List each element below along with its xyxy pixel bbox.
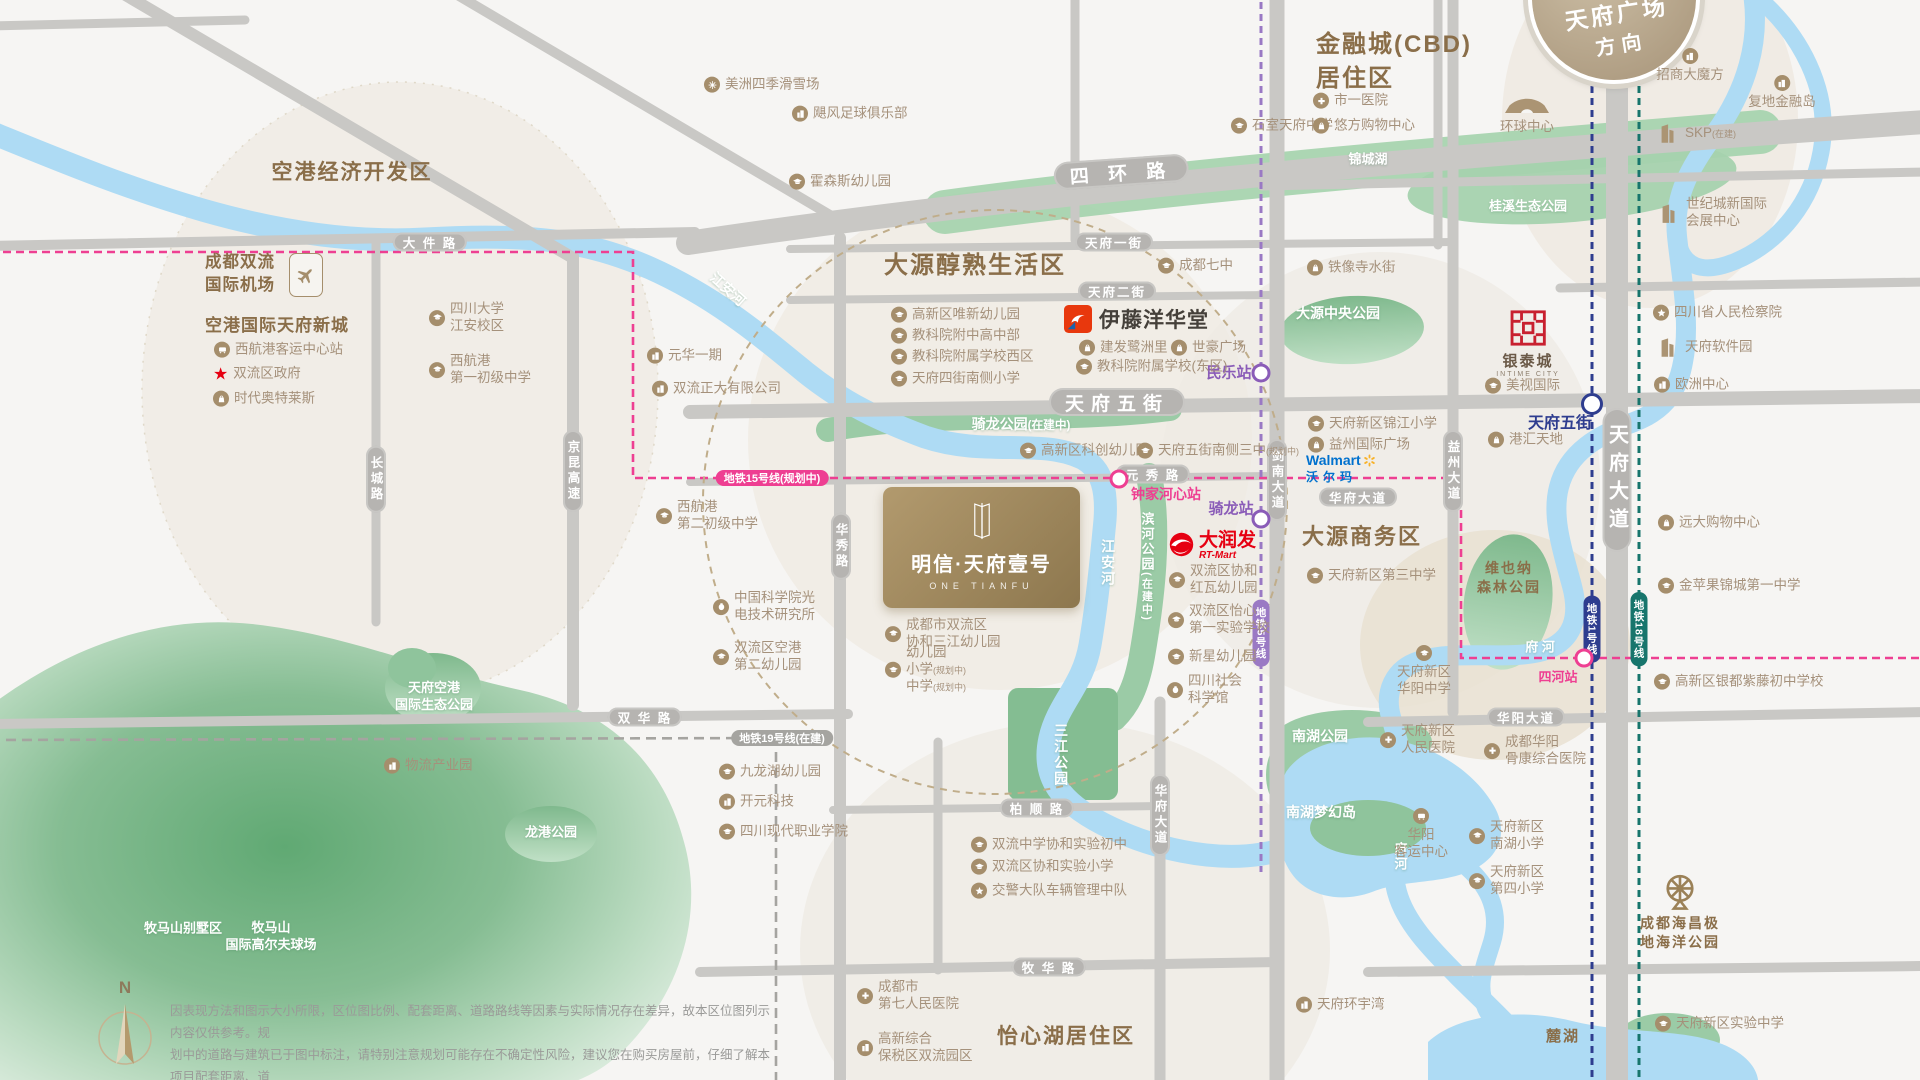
poi-label: 天府新区第四小学 [1490,864,1544,898]
poi-label: 霍森斯幼儿园 [810,174,891,191]
poi: 双流中学协和实验初中 [971,837,1127,854]
cap-icon [971,837,987,853]
poi-label: 四川社会科学馆 [1188,673,1242,707]
metro-line-badge: 地铁15号线(规划中) [716,470,829,486]
build-icon [652,381,668,397]
poi-label: 双流区政府 [233,366,301,383]
poi-label: 教科院附属学校西区 [912,349,1034,366]
poi: 天府新区第三中学 [1307,568,1436,585]
poi: 天府软件园 [1654,334,1753,360]
cross-icon [1313,93,1329,109]
cap-icon [1168,612,1184,628]
poi-label: 建发鹭洲里 [1100,340,1168,357]
cross-icon [1380,732,1396,748]
airplane-icon [289,253,323,297]
poi: 天府新区人民医院 [1380,723,1455,757]
ito-yokado-logo: 伊藤洋华堂 [1064,304,1209,334]
build-icon [384,758,400,774]
bus-icon [214,342,230,358]
intime-city-logo: 银泰城 INTIME CITY [1496,309,1560,378]
road-label: 华府大道 [1150,774,1170,856]
metro-line-badge: 地铁18号线 [1631,592,1648,666]
bag-icon [1658,515,1674,531]
road-label: 天府二街 [1078,282,1156,301]
poi-label: 西航港第二初级中学 [677,499,758,533]
poi-label: 世豪广场 [1192,340,1246,357]
poi-label: 美视国际 [1506,378,1560,395]
region-title: 大源醇熟生活区 [884,250,1066,282]
poi-label: 新星幼儿园 [1189,649,1257,666]
poi: 西航港第二初级中学 [656,499,758,533]
poi-label: 天府五街南侧三中(规划中) [1158,443,1299,460]
cap-icon [1168,649,1184,665]
poi-label: 高新区唯新幼儿园 [912,307,1020,324]
disclaimer: 因表现方法和图示大小所限，区位图比例、配套距离、道路路线等因素与实际情况存在差异… [170,1000,770,1080]
poi: 飓风足球俱乐部 [792,106,908,123]
park-label: 南湖公园 [1292,727,1348,745]
road-label: 牧 华 路 [1012,958,1086,977]
poi-label: 市一医院 [1334,93,1388,110]
poi-label: 高新区科创幼儿园 [1041,443,1149,460]
bus-icon [1413,808,1429,824]
poi-label: 物流产业园 [405,758,473,775]
poi-label: 高新区银都紫藤初中学校 [1675,674,1824,691]
poi: 华阳客运中心 [1394,808,1448,861]
poi-label: 华阳客运中心 [1394,827,1448,861]
poi: 港汇天地 [1488,432,1563,449]
poi: 天府四街南侧小学 [891,371,1020,388]
poi-label: 天府新区第三中学 [1328,568,1436,585]
poi-label: 天府四街南侧小学 [912,371,1020,388]
poi: 市一医院 [1313,93,1388,110]
poi-label: 双流正大有限公司 [673,381,781,398]
metro-station [1575,649,1594,668]
cap-icon [891,328,907,344]
poi-label: 招商大魔方 [1656,67,1724,84]
cross-icon [1484,743,1500,759]
poi: 天府新区华阳中学 [1397,645,1451,698]
cap-icon [885,662,901,678]
bag-icon [1488,432,1504,448]
airport-line1: 成都双流 [205,251,275,274]
poi: 环球中心 [1500,94,1554,136]
disclaimer-line2: 划中的道路与建筑已于图中标注，请特别注意规划可能存在不确定性风险，建议您在购买房… [170,1044,770,1080]
region-title: 麓湖 [1546,1027,1580,1047]
poi: 世豪广场 [1171,340,1246,357]
cap-icon [713,649,729,665]
poi-label: 四川省人民检察院 [1674,305,1782,322]
park-label: 南湖梦幻岛 [1286,803,1356,821]
poi: 双流区协和实验小学 [971,859,1114,876]
poi-label: 时代奥特莱斯 [234,391,315,408]
metro-station [1252,510,1271,529]
poi-label: 双流区怡心第一实验学校 [1189,603,1270,637]
wheel-icon [1659,870,1701,912]
poi: 欧洲中心 [1654,377,1729,394]
road-label: 华秀路 [831,513,851,580]
arc-icon [1502,94,1552,116]
poi-label: 飓风足球俱乐部 [813,106,908,123]
road-label: 益州大道 [1443,430,1463,512]
poi: 教科院附中高中部 [891,328,1020,345]
park-label: 锦城湖 [1348,152,1387,169]
cap-icon [1158,258,1174,274]
cap-icon [891,349,907,365]
poi-label: 环球中心 [1500,119,1554,136]
poi-label: 港汇天地 [1509,432,1563,449]
park-label: 牧马山别墅区 [144,921,222,938]
one-tianfu-logo-icon [969,500,995,542]
poi: 建发鹭洲里 [1079,340,1168,357]
build-icon [1296,997,1312,1013]
park-label: 桂溪生态公园 [1489,199,1567,216]
poi: SKP(在建) [1654,120,1736,146]
build-icon [719,794,735,810]
cap-icon [1169,572,1185,588]
road-label: 双 华 路 [608,708,682,727]
cap-icon [719,824,735,840]
poi-label: 益州国际广场 [1329,437,1410,454]
cap-icon [1469,828,1485,844]
build-icon [1682,48,1698,64]
poi: 教科院附属学校(东区) [1076,359,1228,376]
airport-label: 成都双流 国际机场 [205,251,275,297]
poi: 成都七中 [1158,258,1233,275]
poi: 美洲四季滑雪场 [704,77,820,94]
region-title: 大源商务区 [1302,522,1422,552]
poi: 成都华阳骨康综合医院 [1484,734,1586,768]
road-label: 京昆高速 [563,430,583,512]
poi-label: 天府新区实验中学 [1676,1016,1784,1033]
build-icon [857,1040,873,1056]
cap-icon [885,626,901,642]
region-title: 空港经济开发区 [272,159,433,187]
poi: 西航港客运中心站 [214,342,343,359]
poi: 四川现代职业学院 [719,824,848,841]
poi-label: 教科院附中高中部 [912,328,1020,345]
airport-newtown-label: 空港国际天府新城 [205,311,349,336]
project-card: 明信·天府壹号 ONE TIANFU [883,487,1080,608]
poi-label: 天府新区人民医院 [1401,723,1455,757]
poi: 九龙湖幼儿园 [719,764,821,781]
poi: 双流正大有限公司 [652,381,781,398]
cap-icon [1137,443,1153,459]
cap-icon [1307,568,1323,584]
cap-icon [1308,416,1324,432]
poi-label: SKP(在建) [1685,125,1736,142]
road-label: 四 环 路 [1053,153,1189,190]
poi: 双流区协和红瓦幼儿园 [1169,563,1258,597]
poi-label: 悠方购物中心 [1334,118,1415,135]
poi: 新星幼儿园 [1168,649,1257,666]
poi: 天府五街南侧三中(规划中) [1137,443,1299,460]
poi-label: 双流中学协和实验初中 [992,837,1127,854]
cap-icon [891,371,907,387]
build-icon [792,106,808,122]
poi-label: 教科院附属学校(东区) [1097,359,1228,376]
region-title: 维也纳森林公园 [1477,559,1541,597]
poi: 益州国际广场 [1308,437,1410,454]
tower-icon [1655,200,1681,226]
poi-label: 铁像寺水街 [1328,260,1396,277]
poi-label: 高新综合保税区双流园区 [878,1031,973,1065]
cap-icon [719,764,735,780]
flake-icon [704,77,720,93]
bag-icon [1308,437,1324,453]
cap-icon [1231,118,1247,134]
poi-label: 天府环宇湾 [1317,997,1385,1014]
park-label: 江安河 [706,268,749,310]
poi: 天府环宇湾 [1296,997,1385,1014]
bag-icon [1307,260,1323,276]
build-icon [647,348,663,364]
metro-station-label: 天府五街 [1528,409,1592,433]
park-label: 江安河 [1099,539,1117,587]
tower-icon [1654,120,1680,146]
poi-label: 四川大学江安校区 [450,301,504,335]
park-label: 府 河 [1525,640,1555,657]
bag-icon [1079,340,1095,356]
park-label: 龙港公园 [525,825,577,842]
road-label: 长城路 [366,446,386,513]
poi: 开元科技 [719,794,794,811]
walmart-logo: Walmart 沃尔玛 [1306,452,1376,486]
poi: 教科院附属学校西区 [891,349,1034,366]
poi: 天府新区南湖小学 [1469,819,1544,853]
poi: 物流产业园 [384,758,473,775]
poi-label: 西航港第一初级中学 [450,353,531,387]
build-icon [1774,75,1790,91]
poi: 四川省人民检察院 [1653,305,1782,322]
poi-label: 世纪城新国际会展中心 [1686,196,1767,230]
poi: 天府新区实验中学 [1655,1016,1784,1033]
poi: 高新综合保税区双流园区 [857,1031,973,1065]
cross-icon [857,988,873,1004]
cap-icon [1655,1016,1671,1032]
rt-mart-icon [1168,531,1195,558]
poi: 中国科学院光电技术研究所 [713,590,815,624]
poi: 天府新区锦江小学 [1308,416,1437,433]
metro-station [1110,470,1129,489]
park-label: 骑龙公园(在建中) [972,415,1071,433]
region-title: 金融城(CBD) [1316,29,1472,61]
starc-icon [971,883,987,899]
poi: 复地金融岛 [1748,75,1816,111]
starc-icon [1653,305,1669,321]
vase-icon [713,599,729,615]
walmart-spark-icon [1363,454,1376,467]
poi-label: 双流区空港第二幼儿园 [734,640,802,674]
poi: 高新区科创幼儿园 [1020,443,1149,460]
project-name: 明信·天府壹号 [911,548,1052,577]
park-label: 大源中央公园 [1296,304,1380,322]
metro-station-label: 骑龙站 [1208,498,1253,519]
cap-icon [1485,378,1501,394]
poi-label: 中国科学院光电技术研究所 [734,590,815,624]
rt-mart-logo: 大润发 RT-Mart [1168,531,1256,561]
park-label: 天府空港国际生态公园 [395,680,473,714]
star-icon: ★ [213,366,228,383]
cap-icon [1654,674,1670,690]
poi-label: 双流区协和红瓦幼儿园 [1190,563,1258,597]
poi-label: 美洲四季滑雪场 [725,77,820,94]
poi: 高新区唯新幼儿园 [891,307,1020,324]
poi: 成都市第七人民医院 [857,979,959,1013]
region-title: 居住区 [1316,63,1394,95]
vase-icon [1167,682,1183,698]
poi: 铁像寺水街 [1307,260,1396,277]
road-label: 天府一街 [1075,233,1153,252]
airport-line2: 国际机场 [205,274,275,297]
project-name-en: ONE TIANFU [929,581,1033,591]
poi: 金苹果锦城第一中学 [1658,578,1801,595]
poi: 双流区空港第二幼儿园 [713,640,802,674]
cap-icon [656,508,672,524]
poi-label: 成都市第七人民医院 [878,979,959,1013]
cap-icon [1658,578,1674,594]
poi-label: 天府新区锦江小学 [1329,416,1437,433]
poi-label: 天府新区南湖小学 [1490,819,1544,853]
poi-label: 四川现代职业学院 [740,824,848,841]
poi-label: 交警大队车辆管理中队 [992,883,1127,900]
poi: 天府新区第四小学 [1469,864,1544,898]
poi: 世纪城新国际会展中心 [1655,196,1767,230]
cap-icon [1416,645,1432,661]
poi [1659,870,1701,912]
cap-icon [971,859,987,875]
cap-icon [1469,873,1485,889]
park-label: 牧马山国际高尔夫球场 [225,920,316,954]
poi-label: 成都华阳骨康综合医院 [1505,734,1586,768]
region-title: 怡心湖居住区 [997,1023,1135,1051]
park-label: 滨河公园(在建中) [1138,512,1155,622]
map-canvas: 明信·天府壹号 ONE TIANFU 成都双流 国际机场 空港国际天府新城 天府… [0,0,1920,1080]
build-icon [1654,377,1670,393]
poi: 悠方购物中心 [1313,118,1415,135]
poi: 双流区怡心第一实验学校 [1168,603,1270,637]
poi: 招商大魔方 [1656,48,1724,84]
poi-label: 金苹果锦城第一中学 [1679,578,1801,595]
road-label: 天府大道 [1603,408,1632,552]
poi-label: 天府新区华阳中学 [1397,664,1451,698]
poi: 元华一期 [647,348,722,365]
poi-label: 复地金融岛 [1748,94,1816,111]
metro-station [1252,364,1271,383]
poi: ★双流区政府 [213,366,301,383]
poi: 西航港第一初级中学 [429,353,531,387]
metro-line-badge: 地铁19号线(在建) [731,730,833,746]
road-label: 华府大道 [1319,488,1397,507]
metro-station-label: 钟家河心站 [1131,484,1201,504]
poi-label: 幼儿园小学(规划中)中学(规划中) [906,645,966,696]
road-label: 天府五街 [1049,388,1185,416]
poi: 四川社会科学馆 [1167,673,1242,707]
poi-label: 开元科技 [740,794,794,811]
cap-icon [429,310,445,326]
ito-yokado-icon [1064,305,1092,333]
cap-icon [789,174,805,190]
poi: 美视国际 [1485,378,1560,395]
poi-label: 九龙湖幼儿园 [740,764,821,781]
poi-label: 元华一期 [668,348,722,365]
poi: 交警大队车辆管理中队 [971,883,1127,900]
poi-label: 天府软件园 [1685,339,1753,356]
road-label: 柏 顺 路 [1000,799,1074,818]
cap-icon [1076,359,1092,375]
intime-lattice-icon [1509,309,1547,347]
road-label: 华阳大道 [1487,708,1565,727]
poi: 远大购物中心 [1658,515,1760,532]
road-label: 大 件 路 [393,233,467,252]
poi: 高新区银都紫藤初中学校 [1654,674,1824,691]
poi: 时代奥特莱斯 [213,391,315,408]
poi-label: 双流区协和实验小学 [992,859,1114,876]
poi: 霍森斯幼儿园 [789,174,891,191]
bag-icon [1171,340,1187,356]
cap-icon [429,362,445,378]
poi-label: 远大购物中心 [1679,515,1760,532]
metro-station-label: 四河站 [1538,667,1577,686]
poi: 四川大学江安校区 [429,301,504,335]
poi-label: 欧洲中心 [1675,377,1729,394]
poi-label: 成都七中 [1179,258,1233,275]
park-label: 三江公园 [1052,723,1070,787]
bag-icon [1313,118,1329,134]
disclaimer-line1: 因表现方法和图示大小所限，区位图比例、配套距离、道路路线等因素与实际情况存在差异… [170,1000,770,1044]
cap-icon [891,307,907,323]
poi-label: 西航港客运中心站 [235,342,343,359]
north-label: N [119,978,131,998]
poi: 幼儿园小学(规划中)中学(规划中) [885,645,966,696]
region-title: 成都海昌极地海洋公园 [1640,914,1720,952]
bag-icon [213,391,229,407]
tower-icon [1654,334,1680,360]
cap-icon [1020,443,1036,459]
